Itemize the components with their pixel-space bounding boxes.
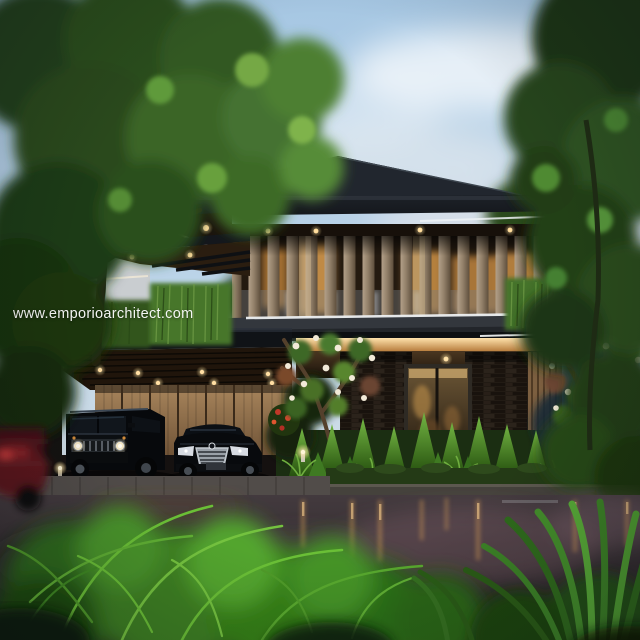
suv-g-class bbox=[53, 409, 177, 484]
sedan-star-emblem bbox=[209, 443, 215, 449]
driveway-apron bbox=[0, 476, 330, 498]
architectural-render-scene: www.emporioarchitect.com bbox=[0, 0, 640, 640]
watermark-url: www.emporioarchitect.com bbox=[13, 306, 193, 322]
upper-soffit bbox=[232, 224, 556, 238]
